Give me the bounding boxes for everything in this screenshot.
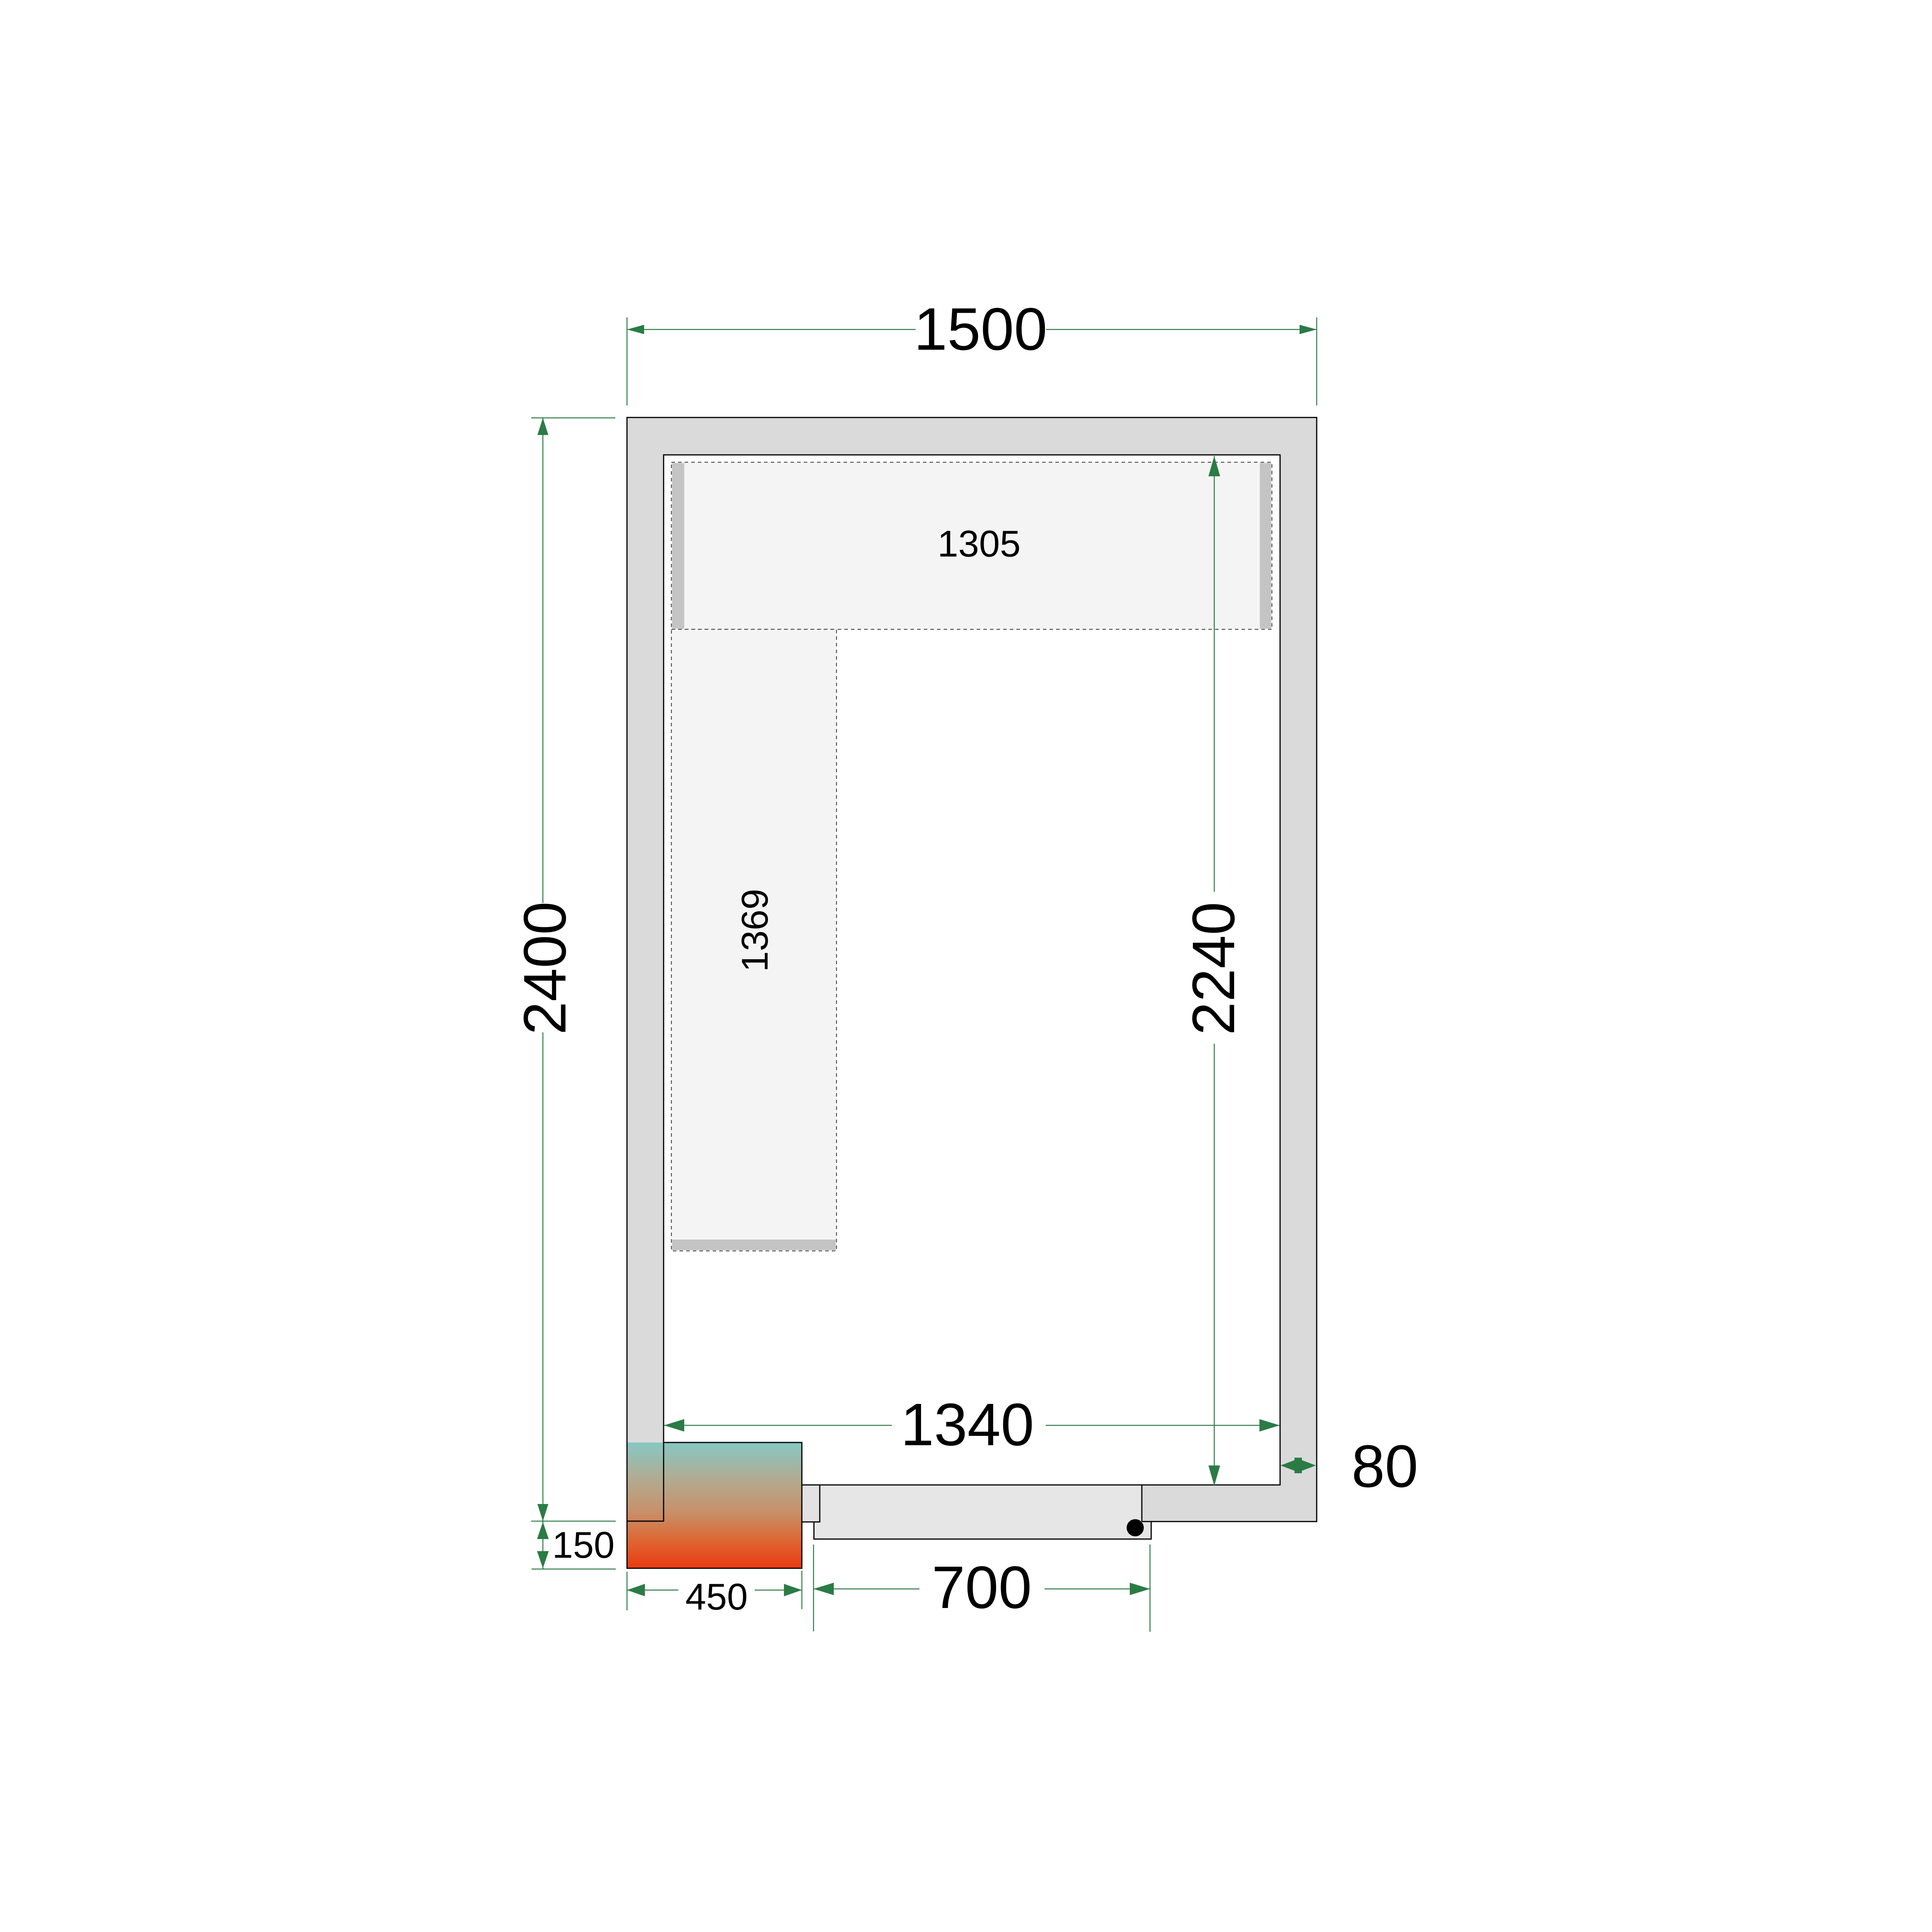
svg-text:2240: 2240 [1180, 902, 1247, 1036]
svg-text:1500: 1500 [914, 296, 1048, 363]
svg-text:1369: 1369 [734, 889, 776, 972]
svg-text:1305: 1305 [937, 523, 1021, 565]
svg-text:450: 450 [685, 1576, 748, 1618]
svg-text:700: 700 [932, 1554, 1032, 1621]
svg-text:2400: 2400 [511, 902, 578, 1035]
svg-text:150: 150 [552, 1524, 615, 1566]
svg-text:80: 80 [1351, 1433, 1418, 1500]
svg-text:1340: 1340 [901, 1391, 1034, 1458]
